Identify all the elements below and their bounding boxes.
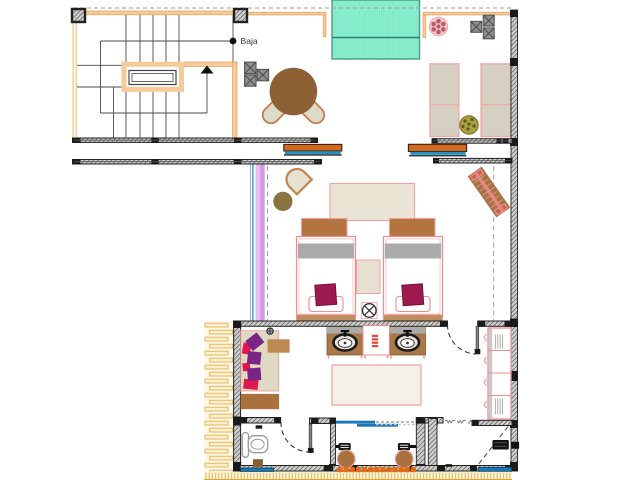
svg-text:Baja: Baja	[241, 36, 258, 46]
